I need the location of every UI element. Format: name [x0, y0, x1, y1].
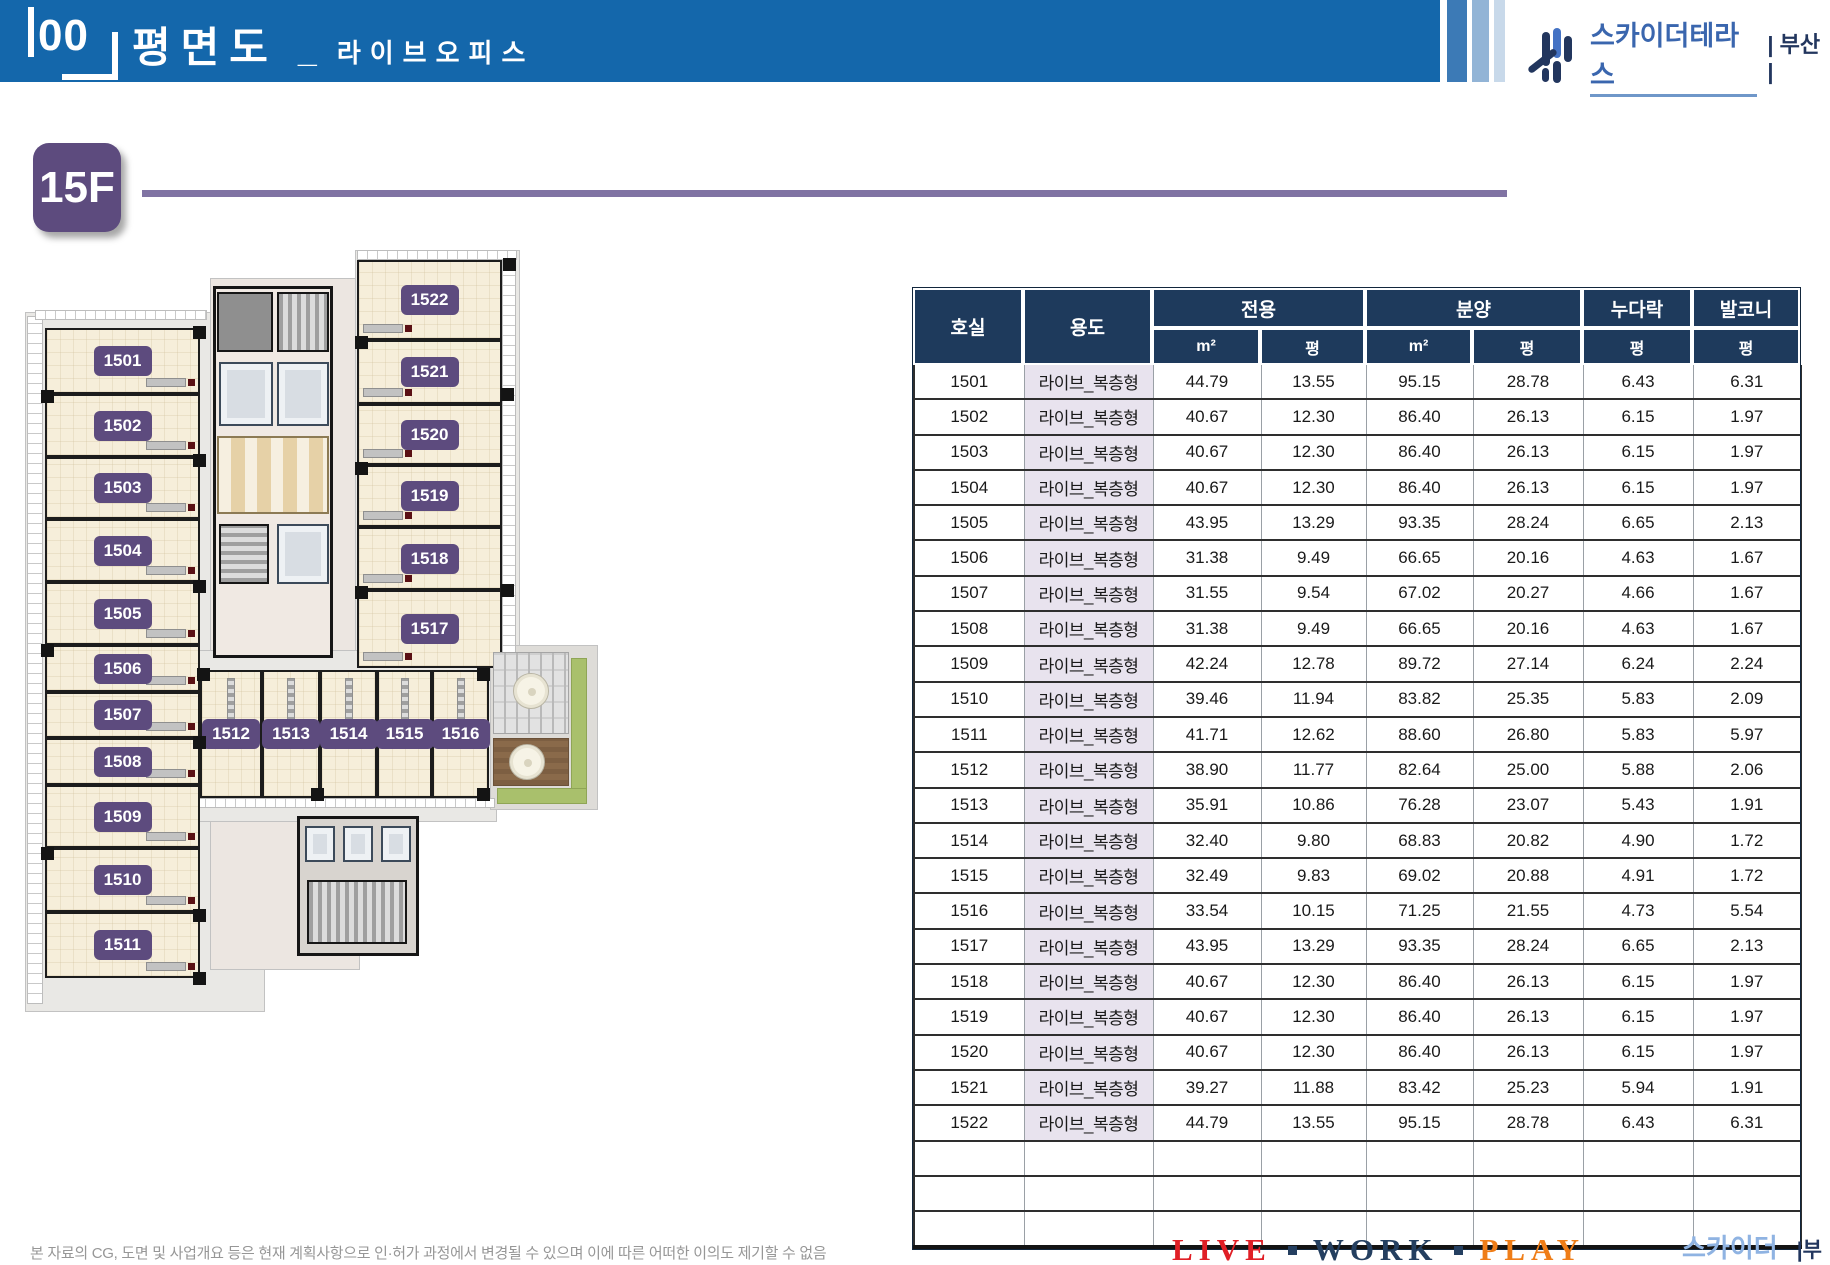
unit-furniture-mark	[146, 629, 186, 638]
unit-door-mark	[188, 963, 195, 970]
table-cell-room: 1509	[914, 646, 1024, 681]
table-cell-room: 1517	[914, 929, 1024, 964]
unit-badge: 1511	[94, 930, 152, 960]
core-restroom	[217, 436, 329, 514]
unit-badge: 1505	[94, 599, 152, 629]
unit-badge: 1522	[401, 285, 459, 315]
table-cell-sp_sqm	[1366, 1176, 1473, 1211]
table-cell-balcony	[1693, 1141, 1801, 1176]
table-cell-ex_py: 12.30	[1261, 470, 1366, 505]
col-header-exclusive: 전용	[1152, 288, 1365, 328]
unit-badge: 1501	[94, 346, 152, 376]
structural-column	[41, 390, 54, 403]
table-row: 1512라이브_복층형38.9011.7782.6425.005.882.06	[914, 752, 1801, 787]
table-cell-sp_sqm: 69.02	[1366, 858, 1473, 893]
table-cell-sp_py: 28.24	[1473, 929, 1583, 964]
table-cell-balcony: 1.67	[1693, 611, 1801, 646]
table-cell-sp_sqm: 93.35	[1366, 505, 1473, 540]
table-cell-use: 라이브_복층형	[1024, 752, 1153, 787]
unit-badge: 1521	[401, 357, 459, 387]
unit-door-mark	[188, 379, 195, 386]
table-cell-use: 라이브_복층형	[1024, 964, 1153, 999]
table-cell-ex_py: 12.30	[1261, 999, 1366, 1034]
slogan-dot-icon	[1288, 1246, 1297, 1255]
table-cell-sp_py: 25.23	[1473, 1070, 1583, 1105]
unit-badge: 1508	[94, 747, 152, 777]
table-cell-sp_sqm: 88.60	[1366, 717, 1473, 752]
table-cell-sp_sqm: 95.15	[1366, 365, 1473, 399]
lower-core-stair	[307, 880, 407, 944]
table-cell-balcony: 5.54	[1693, 893, 1801, 928]
table-cell-ex_py: 13.55	[1261, 365, 1366, 399]
subheader-supply-sqm: m²	[1365, 328, 1472, 365]
table-row: 1509라이브_복층형42.2412.7889.7227.146.242.24	[914, 646, 1801, 681]
table-cell-use	[1024, 1176, 1153, 1211]
table-cell-ex_py: 12.78	[1261, 646, 1366, 681]
table-cell-loft: 4.63	[1583, 611, 1693, 646]
unit-door-mark	[188, 770, 195, 777]
table-row: 1510라이브_복층형39.4611.9483.8225.355.832.09	[914, 682, 1801, 717]
table-cell-room	[914, 1176, 1024, 1211]
table-cell-sp_sqm: 82.64	[1366, 752, 1473, 787]
index-bracket-right	[62, 32, 118, 80]
table-cell-ex_py: 12.30	[1261, 399, 1366, 434]
table-cell-room: 1503	[914, 435, 1024, 470]
table-cell-balcony: 6.31	[1693, 1105, 1801, 1140]
table-cell-loft: 5.83	[1583, 717, 1693, 752]
table-cell-room: 1521	[914, 1070, 1024, 1105]
table-cell-room: 1510	[914, 682, 1024, 717]
table-cell-room: 1502	[914, 399, 1024, 434]
table-cell-sp_py: 20.82	[1473, 823, 1583, 858]
window-band-topright	[357, 250, 517, 260]
table-row: 1504라이브_복층형40.6712.3086.4026.136.151.97	[914, 470, 1801, 505]
lower-core-elevator	[343, 826, 373, 862]
table-cell-ex_sqm: 33.54	[1153, 893, 1261, 928]
table-cell-loft: 5.83	[1583, 682, 1693, 717]
table-cell-balcony: 1.67	[1693, 540, 1801, 575]
table-cell-sp_py: 20.27	[1473, 576, 1583, 611]
unit-door-mark	[188, 567, 195, 574]
slogan-play: PLAY	[1479, 1232, 1585, 1265]
table-cell-sp_sqm	[1366, 1141, 1473, 1176]
table-cell-ex_py: 10.86	[1261, 788, 1366, 823]
table-cell-loft: 6.15	[1583, 1035, 1693, 1070]
structural-column	[477, 668, 490, 681]
table-cell-loft: 5.94	[1583, 1070, 1693, 1105]
table-cell-loft: 6.43	[1583, 1105, 1693, 1140]
table-cell-sp_py	[1473, 1141, 1583, 1176]
table-cell-sp_sqm: 68.83	[1366, 823, 1473, 858]
table-cell-room: 1507	[914, 576, 1024, 611]
table-cell-ex_sqm: 39.27	[1153, 1070, 1261, 1105]
structural-column	[193, 909, 206, 922]
table-cell-ex_sqm: 31.38	[1153, 540, 1261, 575]
table-cell-balcony: 1.97	[1693, 999, 1801, 1034]
terrace-umbrella	[509, 744, 545, 780]
table-cell-sp_sqm: 89.72	[1366, 646, 1473, 681]
table-cell-use: 라이브_복층형	[1024, 858, 1153, 893]
table-cell-balcony: 1.91	[1693, 1070, 1801, 1105]
table-cell-use: 라이브_복층형	[1024, 611, 1153, 646]
table-cell-ex_py	[1261, 1141, 1366, 1176]
unit-door-mark	[188, 833, 195, 840]
table-cell-ex_sqm: 43.95	[1153, 505, 1261, 540]
unit-badge: 1510	[94, 865, 152, 895]
table-cell-loft	[1583, 1211, 1693, 1247]
table-cell-ex_py: 13.29	[1261, 505, 1366, 540]
structural-column	[193, 580, 206, 593]
table-cell-sp_py: 27.14	[1473, 646, 1583, 681]
table-row: 1506라이브_복층형31.389.4966.6520.164.631.67	[914, 540, 1801, 575]
index-bracket-left	[28, 7, 34, 57]
table-cell-ex_sqm: 40.67	[1153, 399, 1261, 434]
table-cell-use: 라이브_복층형	[1024, 540, 1153, 575]
table-cell-balcony: 6.31	[1693, 365, 1801, 399]
table-cell-use: 라이브_복층형	[1024, 682, 1153, 717]
table-cell-room: 1511	[914, 717, 1024, 752]
table-cell-sp_py: 26.13	[1473, 470, 1583, 505]
table-cell-loft	[1583, 1141, 1693, 1176]
table-cell-ex_py: 12.62	[1261, 717, 1366, 752]
table-cell-use: 라이브_복층형	[1024, 788, 1153, 823]
table-cell-ex_sqm: 39.46	[1153, 682, 1261, 717]
unit-door-mark	[405, 653, 412, 660]
slogan-live: LIVE	[1172, 1232, 1272, 1265]
table-cell-ex_py: 12.30	[1261, 435, 1366, 470]
brand-region-footer: |부산|	[1797, 1234, 1830, 1265]
unit-furniture-mark	[363, 449, 403, 458]
structural-column	[41, 644, 54, 657]
table-cell-loft: 5.43	[1583, 788, 1693, 823]
structural-column	[193, 326, 206, 339]
unit-badge: 1516	[432, 719, 490, 749]
unit-badge: 1519	[401, 481, 459, 511]
table-cell-balcony: 1.72	[1693, 858, 1801, 893]
table-cell-use: 라이브_복층형	[1024, 470, 1153, 505]
lower-core-elevator	[305, 826, 335, 862]
table-cell-ex_sqm: 44.79	[1153, 1105, 1261, 1140]
table-cell-balcony: 2.06	[1693, 752, 1801, 787]
table-cell-loft: 6.15	[1583, 399, 1693, 434]
table-cell-ex_py: 9.80	[1261, 823, 1366, 858]
unit-furniture-mark	[146, 769, 186, 778]
table-cell-loft: 4.66	[1583, 576, 1693, 611]
table-cell-balcony: 1.97	[1693, 435, 1801, 470]
unit-table: 호실 용도 전용 분양 누다락 발코니 m² 평 m² 평 평 평 1501라이…	[913, 288, 1800, 1249]
core-elevator	[277, 362, 329, 426]
unit-furniture-mark	[363, 511, 403, 520]
unit-badge: 1512	[202, 719, 260, 749]
table-row: 1522라이브_복층형44.7913.5595.1528.786.436.31	[914, 1105, 1801, 1140]
structural-column	[311, 788, 324, 801]
unit-furniture-mark	[146, 503, 186, 512]
table-cell-balcony: 2.24	[1693, 646, 1801, 681]
unit-badge: 1502	[94, 411, 152, 441]
table-cell-ex_py: 10.15	[1261, 893, 1366, 928]
header-stripe-1	[1447, 0, 1467, 82]
core-stair-bottom	[219, 524, 269, 584]
unit-door-mark	[405, 450, 412, 457]
brand-logo: 스카이더테라스 | 부산 |	[1528, 14, 1830, 97]
unit-badge: 1514	[320, 719, 378, 749]
table-row: 1517라이브_복층형43.9513.2993.3528.246.652.13	[914, 929, 1801, 964]
table-row: 1503라이브_복층형40.6712.3086.4026.136.151.97	[914, 435, 1801, 470]
col-header-balcony: 발코니	[1692, 288, 1800, 328]
table-cell-use: 라이브_복층형	[1024, 893, 1153, 928]
table-cell-ex_sqm: 40.67	[1153, 999, 1261, 1034]
table-cell-balcony: 2.09	[1693, 682, 1801, 717]
table-cell-balcony: 1.97	[1693, 964, 1801, 999]
table-cell-sp_sqm: 83.42	[1366, 1070, 1473, 1105]
table-cell-ex_py: 11.94	[1261, 682, 1366, 717]
table-cell-room	[914, 1211, 1024, 1247]
structural-column	[501, 388, 514, 401]
unit-furniture-mark	[363, 324, 403, 333]
building-logo-icon	[1528, 28, 1580, 84]
table-row: 1519라이브_복층형40.6712.3086.4026.136.151.97	[914, 999, 1801, 1034]
table-cell-loft: 4.91	[1583, 858, 1693, 893]
table-cell-sp_sqm: 86.40	[1366, 1035, 1473, 1070]
structural-column	[41, 847, 54, 860]
slogan-work: WORK	[1313, 1232, 1439, 1265]
table-row: 1505라이브_복층형43.9513.2993.3528.246.652.13	[914, 505, 1801, 540]
unit-furniture-mark	[146, 566, 186, 575]
table-empty-row	[914, 1176, 1801, 1211]
header-bar: 00 평면도 _ 라이브오피스	[0, 0, 1440, 82]
brand-logo-footer: 스카이더테라스 |부산|	[1682, 1228, 1830, 1265]
table-cell-room: 1505	[914, 505, 1024, 540]
unit-door-mark	[405, 389, 412, 396]
core-stair-top	[277, 292, 329, 352]
table-cell-loft: 6.15	[1583, 999, 1693, 1034]
table-cell-loft	[1583, 1176, 1693, 1211]
table-cell-room: 1518	[914, 964, 1024, 999]
unit-door-mark	[188, 897, 195, 904]
table-cell-use: 라이브_복층형	[1024, 1105, 1153, 1140]
table-cell-sp_py: 20.16	[1473, 611, 1583, 646]
table-cell-sp_py: 26.80	[1473, 717, 1583, 752]
unit-furniture-mark	[146, 896, 186, 905]
disclaimer-text: 본 자료의 CG, 도면 및 사업개요 등은 현재 계획사항으로 인·허가 과정…	[30, 1242, 826, 1263]
unit-furniture-mark	[146, 722, 186, 731]
structural-column	[501, 584, 514, 597]
table-cell-room: 1513	[914, 788, 1024, 823]
unit-furniture-mark	[363, 574, 403, 583]
table-cell-ex_sqm: 40.67	[1153, 470, 1261, 505]
terrace-umbrella	[513, 673, 549, 709]
table-cell-sp_py: 20.88	[1473, 858, 1583, 893]
unit-furniture-mark	[146, 378, 186, 387]
unit-table-body: 1501라이브_복층형44.7913.5595.1528.786.436.311…	[913, 365, 1802, 1249]
header-stripe-2	[1472, 0, 1489, 82]
floor-plan: 1501150215031504150515061507150815091510…	[25, 250, 725, 1020]
table-cell-balcony: 1.97	[1693, 1035, 1801, 1070]
table-cell-sp_py: 28.24	[1473, 505, 1583, 540]
table-cell-room: 1506	[914, 540, 1024, 575]
table-cell-ex_sqm: 43.95	[1153, 929, 1261, 964]
table-cell-loft: 6.65	[1583, 505, 1693, 540]
unit-badge: 1515	[376, 719, 434, 749]
table-cell-use: 라이브_복층형	[1024, 1070, 1153, 1105]
window-band-left	[27, 316, 43, 1004]
structural-column	[193, 736, 206, 749]
table-cell-use: 라이브_복층형	[1024, 505, 1153, 540]
table-cell-loft: 6.43	[1583, 365, 1693, 399]
table-cell-ex_sqm: 44.79	[1153, 365, 1261, 399]
table-cell-ex_sqm: 31.55	[1153, 576, 1261, 611]
unit-door-mark	[405, 575, 412, 582]
table-cell-sp_py: 26.13	[1473, 964, 1583, 999]
unit-door-mark	[188, 723, 195, 730]
unit-badge: 1518	[401, 544, 459, 574]
table-row: 1515라이브_복층형32.499.8369.0220.884.911.72	[914, 858, 1801, 893]
table-cell-room: 1508	[914, 611, 1024, 646]
structural-column	[355, 336, 368, 349]
table-cell-balcony: 1.97	[1693, 399, 1801, 434]
subheader-loft-pyeong: 평	[1582, 328, 1692, 365]
unit-badge: 1517	[401, 614, 459, 644]
table-cell-ex_py: 11.77	[1261, 752, 1366, 787]
unit-furniture-mark	[146, 676, 186, 685]
page-title-subtitle: 라이브오피스	[337, 33, 535, 70]
unit-furniture-mark	[146, 962, 186, 971]
slogan-dot-icon	[1454, 1246, 1463, 1255]
slogan: LIVE WORK PLAY	[1172, 1232, 1585, 1265]
table-cell-use	[1024, 1211, 1153, 1247]
brand-name: 스카이더테라스	[1590, 14, 1757, 97]
floor-rule-line	[142, 190, 1507, 197]
table-row: 1520라이브_복층형40.6712.3086.4026.136.151.97	[914, 1035, 1801, 1070]
window-band-right	[502, 254, 516, 666]
table-cell-use	[1024, 1141, 1153, 1176]
table-cell-sp_py	[1473, 1176, 1583, 1211]
table-cell-sp_sqm: 86.40	[1366, 435, 1473, 470]
table-cell-sp_py: 26.13	[1473, 399, 1583, 434]
table-cell-ex_sqm: 32.40	[1153, 823, 1261, 858]
table-cell-balcony: 1.72	[1693, 823, 1801, 858]
table-cell-loft: 4.90	[1583, 823, 1693, 858]
table-cell-balcony: 1.91	[1693, 788, 1801, 823]
unit-door-mark	[188, 504, 195, 511]
subheader-exclusive-pyeong: 평	[1260, 328, 1365, 365]
table-cell-loft: 5.88	[1583, 752, 1693, 787]
table-row: 1518라이브_복층형40.6712.3086.4026.136.151.97	[914, 964, 1801, 999]
table-cell-sp_py: 26.13	[1473, 1035, 1583, 1070]
subheader-exclusive-sqm: m²	[1152, 328, 1260, 365]
table-cell-loft: 4.63	[1583, 540, 1693, 575]
lower-core-elevator	[381, 826, 411, 862]
core-service-box	[217, 292, 273, 352]
table-cell-ex_py: 9.49	[1261, 611, 1366, 646]
page-title-separator: _	[298, 32, 317, 71]
table-cell-use: 라이브_복층형	[1024, 576, 1153, 611]
structural-column	[193, 454, 206, 467]
table-cell-sp_py: 25.00	[1473, 752, 1583, 787]
table-cell-balcony: 1.97	[1693, 470, 1801, 505]
table-cell-ex_sqm: 40.67	[1153, 1035, 1261, 1070]
table-cell-sp_py: 21.55	[1473, 893, 1583, 928]
table-row: 1501라이브_복층형44.7913.5595.1528.786.436.31	[914, 365, 1801, 399]
unit-badge: 1503	[94, 473, 152, 503]
table-row: 1521라이브_복층형39.2711.8883.4225.235.941.91	[914, 1070, 1801, 1105]
table-cell-use: 라이브_복층형	[1024, 823, 1153, 858]
table-cell-loft: 6.15	[1583, 964, 1693, 999]
table-cell-room: 1520	[914, 1035, 1024, 1070]
unit-badge: 1506	[94, 654, 152, 684]
unit-badge: 1507	[94, 700, 152, 730]
table-cell-ex_sqm: 40.67	[1153, 435, 1261, 470]
core-elevator	[277, 524, 329, 584]
table-cell-sp_sqm: 86.40	[1366, 999, 1473, 1034]
table-cell-sp_py: 23.07	[1473, 788, 1583, 823]
table-cell-loft: 6.15	[1583, 435, 1693, 470]
table-cell-ex_py: 13.29	[1261, 929, 1366, 964]
table-cell-use: 라이브_복층형	[1024, 717, 1153, 752]
structural-column	[197, 668, 210, 681]
unit-table-header: 호실 용도 전용 분양 누다락 발코니 m² 평 m² 평 평 평	[913, 288, 1800, 365]
table-cell-ex_py: 11.88	[1261, 1070, 1366, 1105]
table-cell-sp_py: 26.13	[1473, 999, 1583, 1034]
table-cell-sp_sqm: 66.65	[1366, 611, 1473, 646]
table-cell-use: 라이브_복층형	[1024, 399, 1153, 434]
table-cell-sp_py: 20.16	[1473, 540, 1583, 575]
table-row: 1507라이브_복층형31.559.5467.0220.274.661.67	[914, 576, 1801, 611]
table-cell-ex_sqm: 40.67	[1153, 964, 1261, 999]
table-cell-ex_sqm: 38.90	[1153, 752, 1261, 787]
structural-column	[477, 788, 490, 801]
table-cell-balcony: 1.67	[1693, 576, 1801, 611]
unit-badge: 1520	[401, 420, 459, 450]
table-row: 1516라이브_복층형33.5410.1571.2521.554.735.54	[914, 893, 1801, 928]
table-cell-sp_sqm: 86.40	[1366, 470, 1473, 505]
table-cell-use: 라이브_복층형	[1024, 365, 1153, 399]
table-cell-ex_sqm: 31.38	[1153, 611, 1261, 646]
unit-furniture-mark	[363, 388, 403, 397]
table-cell-room: 1504	[914, 470, 1024, 505]
table-cell-sp_py: 28.78	[1473, 1105, 1583, 1140]
table-row: 1513라이브_복층형35.9110.8676.2823.075.431.91	[914, 788, 1801, 823]
table-cell-use: 라이브_복층형	[1024, 999, 1153, 1034]
table-cell-sp_sqm: 71.25	[1366, 893, 1473, 928]
table-cell-sp_sqm: 66.65	[1366, 540, 1473, 575]
brand-region: | 부산 |	[1767, 27, 1830, 85]
table-cell-ex_sqm	[1153, 1141, 1261, 1176]
col-header-loft: 누다락	[1582, 288, 1692, 328]
table-row: 1502라이브_복층형40.6712.3086.4026.136.151.97	[914, 399, 1801, 434]
table-cell-ex_sqm: 41.71	[1153, 717, 1261, 752]
page-title-main: 평면도	[132, 14, 278, 75]
table-cell-room: 1522	[914, 1105, 1024, 1140]
table-cell-sp_py: 26.13	[1473, 435, 1583, 470]
table-cell-loft: 4.73	[1583, 893, 1693, 928]
terrace-grass-right	[571, 658, 587, 804]
header-stripe-3	[1494, 0, 1505, 82]
table-cell-room: 1512	[914, 752, 1024, 787]
table-cell-sp_py: 25.35	[1473, 682, 1583, 717]
table-cell-sp_sqm: 67.02	[1366, 576, 1473, 611]
table-cell-use: 라이브_복층형	[1024, 1035, 1153, 1070]
table-cell-room: 1501	[914, 365, 1024, 399]
unit-door-mark	[405, 512, 412, 519]
page-title: 평면도 _ 라이브오피스	[132, 14, 534, 75]
unit-furniture-mark	[146, 441, 186, 450]
subheader-supply-pyeong: 평	[1472, 328, 1582, 365]
table-cell-loft: 6.24	[1583, 646, 1693, 681]
slide-page: 00 평면도 _ 라이브오피스 스카이더테라스 | 부산 | 15F 15011…	[0, 0, 1830, 1265]
table-cell-balcony: 2.13	[1693, 505, 1801, 540]
col-header-room: 호실	[913, 288, 1023, 365]
